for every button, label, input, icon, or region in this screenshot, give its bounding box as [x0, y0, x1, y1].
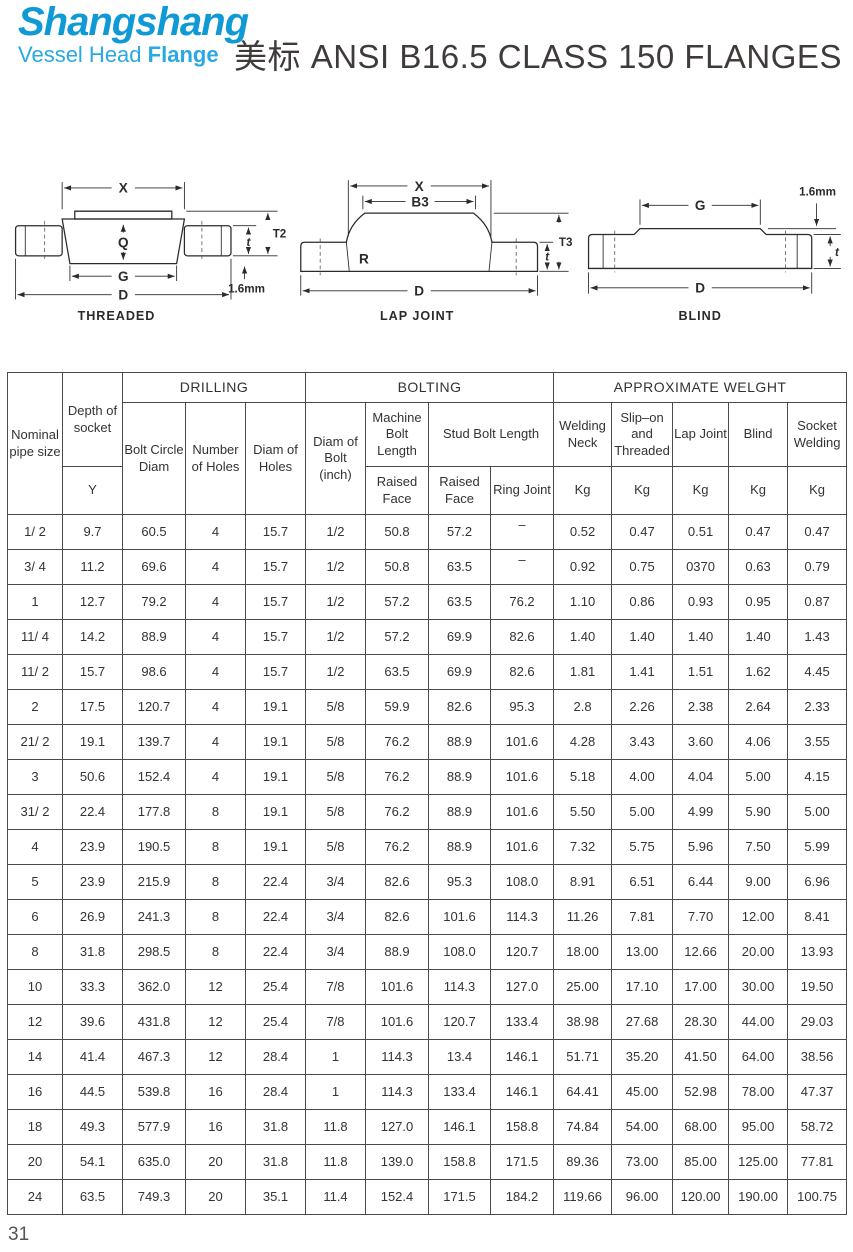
table-cell: 18.00	[554, 935, 612, 970]
table-cell: 54.00	[612, 1110, 673, 1145]
table-cell: 215.9	[123, 865, 186, 900]
table-cell: 1.51	[673, 655, 729, 690]
table-cell: 184.2	[491, 1180, 554, 1215]
table-cell: 3	[8, 760, 63, 795]
table-cell: 15.7	[246, 585, 306, 620]
table-cell: 14.2	[63, 620, 123, 655]
table-cell: 88.9	[429, 725, 491, 760]
table-cell: 29.03	[788, 1005, 847, 1040]
table-cell: 11/ 2	[8, 655, 63, 690]
table-cell: 101.6	[429, 900, 491, 935]
table-cell: 5/8	[306, 830, 366, 865]
table-cell: 22.4	[246, 900, 306, 935]
table-cell: 1/2	[306, 655, 366, 690]
table-cell: 50.6	[63, 760, 123, 795]
table-cell: 7.50	[729, 830, 788, 865]
table-cell: 63.5	[63, 1180, 123, 1215]
blind-drawing: G 1.6mm D t BLIND	[574, 164, 851, 336]
table-cell: 15.7	[246, 550, 306, 585]
table-cell: 467.3	[123, 1040, 186, 1075]
table-row: 31/ 222.4177.8819.15/876.288.9101.65.505…	[8, 795, 847, 830]
col-header-kg-slip-on: Kg	[612, 467, 673, 515]
table-cell: 15.7	[246, 655, 306, 690]
table-cell: 4.99	[673, 795, 729, 830]
table-cell: 19.1	[63, 725, 123, 760]
dim-label-t: t	[247, 236, 252, 249]
table-cell: 0.92	[554, 550, 612, 585]
table-cell: 146.1	[491, 1075, 554, 1110]
table-cell: 73.00	[612, 1145, 673, 1180]
table-cell: 4.06	[729, 725, 788, 760]
table-cell: 1.43	[788, 620, 847, 655]
table-cell: 114.3	[366, 1040, 429, 1075]
table-cell: 4	[186, 760, 246, 795]
table-cell: 57.2	[366, 585, 429, 620]
table-cell: 4	[186, 620, 246, 655]
table-cell: 2.33	[788, 690, 847, 725]
table-cell: 18	[8, 1110, 63, 1145]
col-header-raised-face-machine: Raised Face	[366, 467, 429, 515]
col-header-kg-socket-welding: Kg	[788, 467, 847, 515]
table-cell: 52.98	[673, 1075, 729, 1110]
table-cell: 41.50	[673, 1040, 729, 1075]
col-header-bolt-circle-diam: Bolt Circle Diam	[123, 403, 186, 515]
table-cell: 171.5	[429, 1180, 491, 1215]
table-cell: 24	[8, 1180, 63, 1215]
table-cell: 5/8	[306, 795, 366, 830]
dim-label-t: t	[545, 251, 550, 264]
table-cell: 190.00	[729, 1180, 788, 1215]
table-cell: 25.00	[554, 970, 612, 1005]
table-cell: 0.95	[729, 585, 788, 620]
table-cell: 3/4	[306, 900, 366, 935]
table-cell: 12.66	[673, 935, 729, 970]
table-cell: 13.93	[788, 935, 847, 970]
table-body: 1/ 29.760.5415.71/250.857.2–0.520.470.51…	[8, 515, 847, 1215]
dim-label-r: R	[359, 252, 369, 267]
table-cell: 85.00	[673, 1145, 729, 1180]
table-cell: 69.9	[429, 655, 491, 690]
col-header-y-symbol: Y	[63, 467, 123, 515]
table-cell: 4.00	[612, 760, 673, 795]
table-cell: 44.5	[63, 1075, 123, 1110]
col-header-kg-blind: Kg	[729, 467, 788, 515]
dim-label-d: D	[696, 281, 706, 296]
group-header-bolting: BOLTING	[306, 373, 554, 403]
table-cell: 59.9	[366, 690, 429, 725]
table-cell: 1	[8, 585, 63, 620]
table-cell: 431.8	[123, 1005, 186, 1040]
table-cell: 8	[186, 865, 246, 900]
table-cell: 158.8	[429, 1145, 491, 1180]
table-cell: 76.2	[366, 725, 429, 760]
logo-subtitle-bold: Flange	[148, 42, 219, 67]
table-cell: 23.9	[63, 830, 123, 865]
table-cell: 133.4	[429, 1075, 491, 1110]
table-cell: 6.44	[673, 865, 729, 900]
table-cell: 5/8	[306, 725, 366, 760]
table-cell: 5.00	[612, 795, 673, 830]
table-cell: 25.4	[246, 970, 306, 1005]
table-row: 350.6152.4419.15/876.288.9101.65.184.004…	[8, 760, 847, 795]
dim-label-t: t	[835, 246, 840, 259]
table-cell: 38.98	[554, 1005, 612, 1040]
table-cell: 0.63	[729, 550, 788, 585]
table-cell: 101.6	[491, 760, 554, 795]
table-cell: 17.10	[612, 970, 673, 1005]
table-cell: 139.7	[123, 725, 186, 760]
table-cell: 22.4	[63, 795, 123, 830]
table-cell: 7/8	[306, 970, 366, 1005]
table-row: 423.9190.5819.15/876.288.9101.67.325.755…	[8, 830, 847, 865]
col-header-socket-welding: Socket Welding	[788, 403, 847, 467]
table-cell: 16	[186, 1110, 246, 1145]
col-header-kg-lap-joint: Kg	[673, 467, 729, 515]
table-cell: 50.8	[366, 515, 429, 550]
col-header-machine-bolt-length: Machine Bolt Length	[366, 403, 429, 467]
dim-label-g: G	[118, 269, 129, 284]
table-cell: 12	[8, 1005, 63, 1040]
table-cell: 1.40	[554, 620, 612, 655]
dim-label-x: X	[119, 181, 128, 196]
table-cell: 5.99	[788, 830, 847, 865]
table-cell: 635.0	[123, 1145, 186, 1180]
logo-subtitle: Vessel Head Flange	[18, 44, 233, 66]
table-cell: 4.28	[554, 725, 612, 760]
table-cell: 4.45	[788, 655, 847, 690]
table-cell: 16	[8, 1075, 63, 1110]
table-cell: 28.4	[246, 1040, 306, 1075]
table-cell: 89.36	[554, 1145, 612, 1180]
table-cell: 47.37	[788, 1075, 847, 1110]
table-cell: 31/ 2	[8, 795, 63, 830]
table-row: 1/ 29.760.5415.71/250.857.2–0.520.470.51…	[8, 515, 847, 550]
table-cell: 133.4	[491, 1005, 554, 1040]
table-cell: 31.8	[63, 935, 123, 970]
table-cell: 101.6	[491, 795, 554, 830]
table-cell: 77.81	[788, 1145, 847, 1180]
table-cell: 539.8	[123, 1075, 186, 1110]
table-cell: 5.18	[554, 760, 612, 795]
col-header-lap-joint: Lap Joint	[673, 403, 729, 467]
table-cell: 120.7	[491, 935, 554, 970]
table-cell: 28.4	[246, 1075, 306, 1110]
table-cell: 13.4	[429, 1040, 491, 1075]
table-row: 1033.3362.01225.47/8101.6114.3127.025.00…	[8, 970, 847, 1005]
col-header-raised-face-stud: Raised Face	[429, 467, 491, 515]
table-cell: 152.4	[123, 760, 186, 795]
table-cell: 95.3	[491, 690, 554, 725]
table-cell: 1.40	[673, 620, 729, 655]
table-cell: 76.2	[366, 760, 429, 795]
table-cell: 14	[8, 1040, 63, 1075]
table-cell: 101.6	[366, 1005, 429, 1040]
table-cell: 82.6	[491, 655, 554, 690]
table-row: 1239.6431.81225.47/8101.6120.7133.438.98…	[8, 1005, 847, 1040]
table-cell: 6.96	[788, 865, 847, 900]
table-cell: 45.00	[612, 1075, 673, 1110]
table-cell: 8	[186, 830, 246, 865]
table-cell: 25.4	[246, 1005, 306, 1040]
dim-label-t2: T2	[273, 227, 287, 240]
table-cell: 7.32	[554, 830, 612, 865]
col-header-depth-of-socket: Depth of socket	[63, 373, 123, 467]
table-cell: 8	[8, 935, 63, 970]
table-cell: 82.6	[491, 620, 554, 655]
table-cell: 101.6	[491, 830, 554, 865]
table-cell: 39.6	[63, 1005, 123, 1040]
table-cell: 76.2	[366, 830, 429, 865]
table-cell: 1/ 2	[8, 515, 63, 550]
table-cell: 0.47	[612, 515, 673, 550]
table-cell: 1.40	[729, 620, 788, 655]
table-cell: 4	[186, 585, 246, 620]
dim-label-d: D	[118, 287, 128, 302]
table-cell: 96.00	[612, 1180, 673, 1215]
table-cell: 8	[186, 935, 246, 970]
table-cell: 33.3	[63, 970, 123, 1005]
table-cell: 12.7	[63, 585, 123, 620]
table-cell: 12.00	[729, 900, 788, 935]
table-cell: 57.2	[366, 620, 429, 655]
table-cell: 114.3	[429, 970, 491, 1005]
table-cell: 8	[186, 795, 246, 830]
table-cell: 362.0	[123, 970, 186, 1005]
table-cell: 8	[186, 900, 246, 935]
table-cell: 19.1	[246, 725, 306, 760]
table-cell: 0.93	[673, 585, 729, 620]
table-cell: 2.8	[554, 690, 612, 725]
table-cell: 2.64	[729, 690, 788, 725]
table-cell: 749.3	[123, 1180, 186, 1215]
table-cell: 30.00	[729, 970, 788, 1005]
table-cell: 17.00	[673, 970, 729, 1005]
table-row: 112.779.2415.71/257.263.576.21.100.860.9…	[8, 585, 847, 620]
table-cell: 57.2	[429, 515, 491, 550]
table-cell: 1.81	[554, 655, 612, 690]
table-cell: 3.43	[612, 725, 673, 760]
table-cell: 1.40	[612, 620, 673, 655]
table-row: 1849.3577.91631.811.8127.0146.1158.874.8…	[8, 1110, 847, 1145]
table-cell: 11.8	[306, 1145, 366, 1180]
table-cell: 5.96	[673, 830, 729, 865]
table-cell: 60.5	[123, 515, 186, 550]
table-cell: 82.6	[366, 900, 429, 935]
table-cell: 49.3	[63, 1110, 123, 1145]
table-cell: 95.3	[429, 865, 491, 900]
table-cell: 12	[186, 970, 246, 1005]
table-cell: 8.91	[554, 865, 612, 900]
table-cell: 2.26	[612, 690, 673, 725]
table-cell: 146.1	[491, 1040, 554, 1075]
table-cell: 19.1	[246, 760, 306, 795]
group-header-drilling: DRILLING	[123, 373, 306, 403]
table-row: 831.8298.5822.43/488.9108.0120.718.0013.…	[8, 935, 847, 970]
table-cell: 19.50	[788, 970, 847, 1005]
table-cell: 139.0	[366, 1145, 429, 1180]
table-cell: 577.9	[123, 1110, 186, 1145]
table-cell: 69.9	[429, 620, 491, 655]
table-cell: 1/2	[306, 550, 366, 585]
table-cell: 177.8	[123, 795, 186, 830]
table-cell: 127.0	[366, 1110, 429, 1145]
table-cell: 152.4	[366, 1180, 429, 1215]
table-cell: 0.87	[788, 585, 847, 620]
table-cell: 23.9	[63, 865, 123, 900]
table-cell: 19.1	[246, 795, 306, 830]
table-cell: –	[491, 550, 554, 585]
table-cell: 38.56	[788, 1040, 847, 1075]
table-cell: 101.6	[366, 970, 429, 1005]
page-number: 31	[8, 1224, 29, 1246]
dim-label-x: X	[415, 179, 424, 194]
table-cell: 190.5	[123, 830, 186, 865]
col-header-diam-of-bolt: Diam of Bolt (inch)	[306, 403, 366, 515]
table-cell: 11.4	[306, 1180, 366, 1215]
table-cell: 4	[186, 515, 246, 550]
table-row: 217.5120.7419.15/859.982.695.32.82.262.3…	[8, 690, 847, 725]
table-cell: 3/4	[306, 935, 366, 970]
table-cell: 2.38	[673, 690, 729, 725]
table-cell: 4.15	[788, 760, 847, 795]
table-cell: 3.60	[673, 725, 729, 760]
col-header-stud-bolt-length: Stud Bolt Length	[429, 403, 554, 467]
table-cell: 78.00	[729, 1075, 788, 1110]
table-cell: 88.9	[429, 830, 491, 865]
table-cell: 95.00	[729, 1110, 788, 1145]
table-cell: 0370	[673, 550, 729, 585]
table-cell: 15.7	[63, 655, 123, 690]
table-cell: 4	[186, 690, 246, 725]
table-cell: 16	[186, 1075, 246, 1110]
table-cell: 3/ 4	[8, 550, 63, 585]
col-header-welding-neck: Welding Neck	[554, 403, 612, 467]
table-cell: 4	[186, 655, 246, 690]
table-cell: 4	[186, 550, 246, 585]
col-header-nominal-pipe-size: Nominal pipe size	[8, 373, 63, 515]
table-cell: –	[491, 515, 554, 550]
table-cell: 58.72	[788, 1110, 847, 1145]
table-row: 2463.5749.32035.111.4152.4171.5184.2119.…	[8, 1180, 847, 1215]
page-header: Shangshang Vessel Head Flange 美标 ANSI B1…	[0, 0, 853, 92]
table-cell: 63.5	[429, 550, 491, 585]
dim-label-g: G	[695, 198, 706, 213]
table-cell: 88.9	[123, 620, 186, 655]
table-cell: 298.5	[123, 935, 186, 970]
table-cell: 108.0	[429, 935, 491, 970]
col-header-number-of-holes: Number of Holes	[186, 403, 246, 515]
dim-label-d: D	[414, 284, 424, 299]
table-cell: 120.7	[429, 1005, 491, 1040]
table-cell: 108.0	[491, 865, 554, 900]
table-cell: 13.00	[612, 935, 673, 970]
table-cell: 26.9	[63, 900, 123, 935]
threaded-drawing: X Q G D t T2 1.6mm THREADED	[2, 164, 293, 336]
table-cell: 12	[186, 1040, 246, 1075]
table-cell: 1/2	[306, 620, 366, 655]
table-cell: 9.7	[63, 515, 123, 550]
table-cell: 64.00	[729, 1040, 788, 1075]
table-cell: 20.00	[729, 935, 788, 970]
table-row: 626.9241.3822.43/482.6101.6114.311.267.8…	[8, 900, 847, 935]
table-cell: 20	[8, 1145, 63, 1180]
table-cell: 88.9	[429, 760, 491, 795]
dim-label-q: Q	[118, 235, 129, 250]
table-cell: 9.00	[729, 865, 788, 900]
table-cell: 28.30	[673, 1005, 729, 1040]
table-cell: 7.70	[673, 900, 729, 935]
dim-label-gap: 1.6mm	[800, 186, 837, 199]
table-cell: 146.1	[429, 1110, 491, 1145]
table-cell: 0.75	[612, 550, 673, 585]
table-cell: 5.50	[554, 795, 612, 830]
table-cell: 1.10	[554, 585, 612, 620]
table-cell: 4	[186, 725, 246, 760]
table-cell: 22.4	[246, 865, 306, 900]
dim-label-gap: 1.6mm	[228, 283, 265, 296]
table-row: 21/ 219.1139.7419.15/876.288.9101.64.283…	[8, 725, 847, 760]
table-cell: 10	[8, 970, 63, 1005]
table-cell: 0.79	[788, 550, 847, 585]
table-cell: 3.55	[788, 725, 847, 760]
table-cell: 20	[186, 1145, 246, 1180]
table-cell: 35.20	[612, 1040, 673, 1075]
table-cell: 76.2	[366, 795, 429, 830]
table-cell: 1/2	[306, 585, 366, 620]
table-cell: 15.7	[246, 515, 306, 550]
table-cell: 4.04	[673, 760, 729, 795]
table-cell: 27.68	[612, 1005, 673, 1040]
group-header-approximate-weight: APPROXIMATE WELGHT	[554, 373, 847, 403]
table-cell: 63.5	[429, 585, 491, 620]
table-cell: 11.2	[63, 550, 123, 585]
table-cell: 12	[186, 1005, 246, 1040]
table-cell: 35.1	[246, 1180, 306, 1215]
page-title: 美标 ANSI B16.5 CLASS 150 FLANGES	[233, 30, 843, 78]
table-cell: 127.0	[491, 970, 554, 1005]
table-cell: 8.41	[788, 900, 847, 935]
table-row: 1644.5539.81628.41114.3133.4146.164.4145…	[8, 1075, 847, 1110]
table-cell: 5.00	[729, 760, 788, 795]
table-cell: 5.00	[788, 795, 847, 830]
table-cell: 120.7	[123, 690, 186, 725]
table-cell: 82.6	[366, 865, 429, 900]
table-cell: 50.8	[366, 550, 429, 585]
logo-subtitle-light: Vessel Head	[18, 42, 142, 67]
dim-label-t3: T3	[559, 236, 573, 249]
table-cell: 1.62	[729, 655, 788, 690]
table-cell: 31.8	[246, 1110, 306, 1145]
table-cell: 158.8	[491, 1110, 554, 1145]
dim-label-b3: B3	[412, 194, 430, 209]
table-cell: 1	[306, 1040, 366, 1075]
table-cell: 1.41	[612, 655, 673, 690]
table-cell: 82.6	[429, 690, 491, 725]
col-header-diam-of-holes: Diam of Holes	[246, 403, 306, 515]
table-cell: 19.1	[246, 690, 306, 725]
table-cell: 98.6	[123, 655, 186, 690]
table-cell: 11.26	[554, 900, 612, 935]
table-cell: 5/8	[306, 690, 366, 725]
table-cell: 63.5	[366, 655, 429, 690]
table-cell: 64.41	[554, 1075, 612, 1110]
table-cell: 241.3	[123, 900, 186, 935]
company-logo: Shangshang Vessel Head Flange	[18, 2, 233, 66]
col-header-kg-welding-neck: Kg	[554, 467, 612, 515]
table-cell: 54.1	[63, 1145, 123, 1180]
table-cell: 76.2	[491, 585, 554, 620]
table-cell: 114.3	[491, 900, 554, 935]
